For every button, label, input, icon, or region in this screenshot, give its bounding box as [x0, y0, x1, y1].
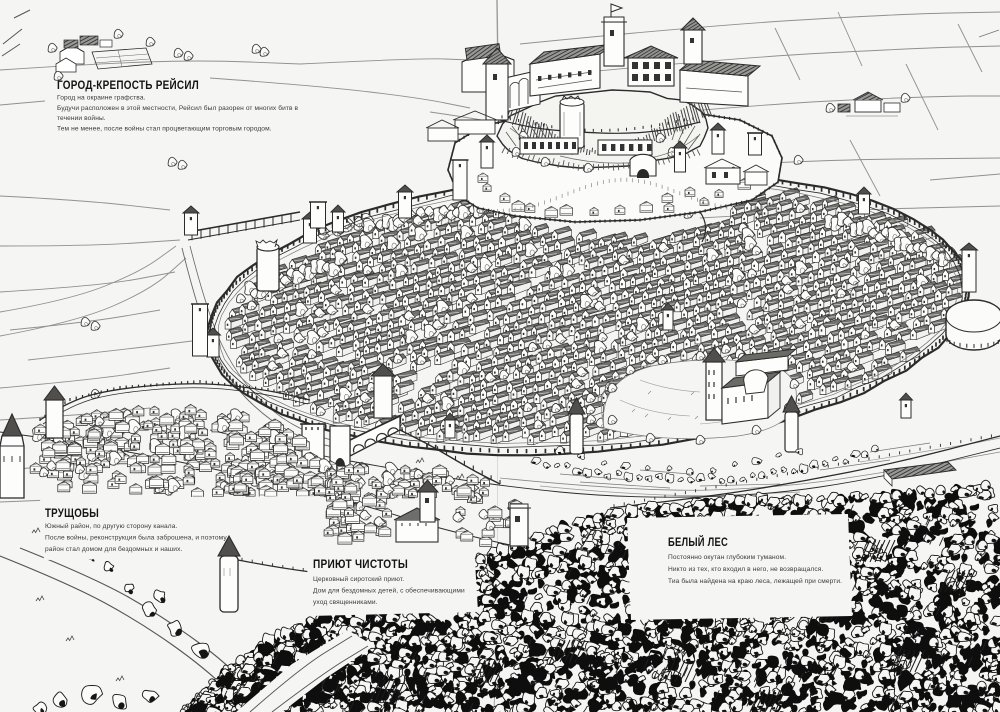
svg-text:уход священниками.: уход священниками.: [313, 599, 378, 606]
svg-text:Тиа была найдена на краю леса,: Тиа была найдена на краю леса, лежащей п…: [668, 577, 842, 585]
svg-text:Город на окраине графства.: Город на окраине графства.: [57, 95, 146, 102]
svg-text:ГОРОД-КРЕПОСТЬ РЕЙСИЛ: ГОРОД-КРЕПОСТЬ РЕЙСИЛ: [57, 79, 199, 92]
svg-text:Дом для бездомных детей, с обе: Дом для бездомных детей, с обеспечивающи…: [313, 587, 465, 595]
svg-text:Тем не менее, после войны стал: Тем не менее, после войны стал процветаю…: [57, 125, 272, 133]
svg-text:Южный район, по другую сторону: Южный район, по другую сторону канала.: [45, 522, 177, 530]
svg-text:ПРИЮТ ЧИСТОТЫ: ПРИЮТ ЧИСТОТЫ: [313, 559, 408, 571]
svg-text:район стал домом для бездомных: район стал домом для бездомных и наших.: [45, 545, 182, 553]
svg-text:Церковный сиротский приют.: Церковный сиротский приют.: [313, 575, 404, 583]
svg-text:ТРУЩОБЫ: ТРУЩОБЫ: [45, 508, 99, 520]
svg-text:течении войны.: течении войны.: [57, 114, 106, 122]
svg-text:После войны, реконструкция был: После войны, реконструкция была заброшен…: [45, 534, 227, 542]
svg-text:Будучи расположен в этой местн: Будучи расположен в этой местности, Рейс…: [57, 104, 299, 112]
svg-text:Никто из тех, кто входил в нег: Никто из тех, кто входил в него, не возв…: [668, 566, 823, 573]
svg-text:БЕЛЫЙ ЛЕС: БЕЛЫЙ ЛЕС: [668, 536, 728, 549]
svg-text:Постоянно окутан глубоким тума: Постоянно окутан глубоким туманом.: [668, 553, 786, 561]
